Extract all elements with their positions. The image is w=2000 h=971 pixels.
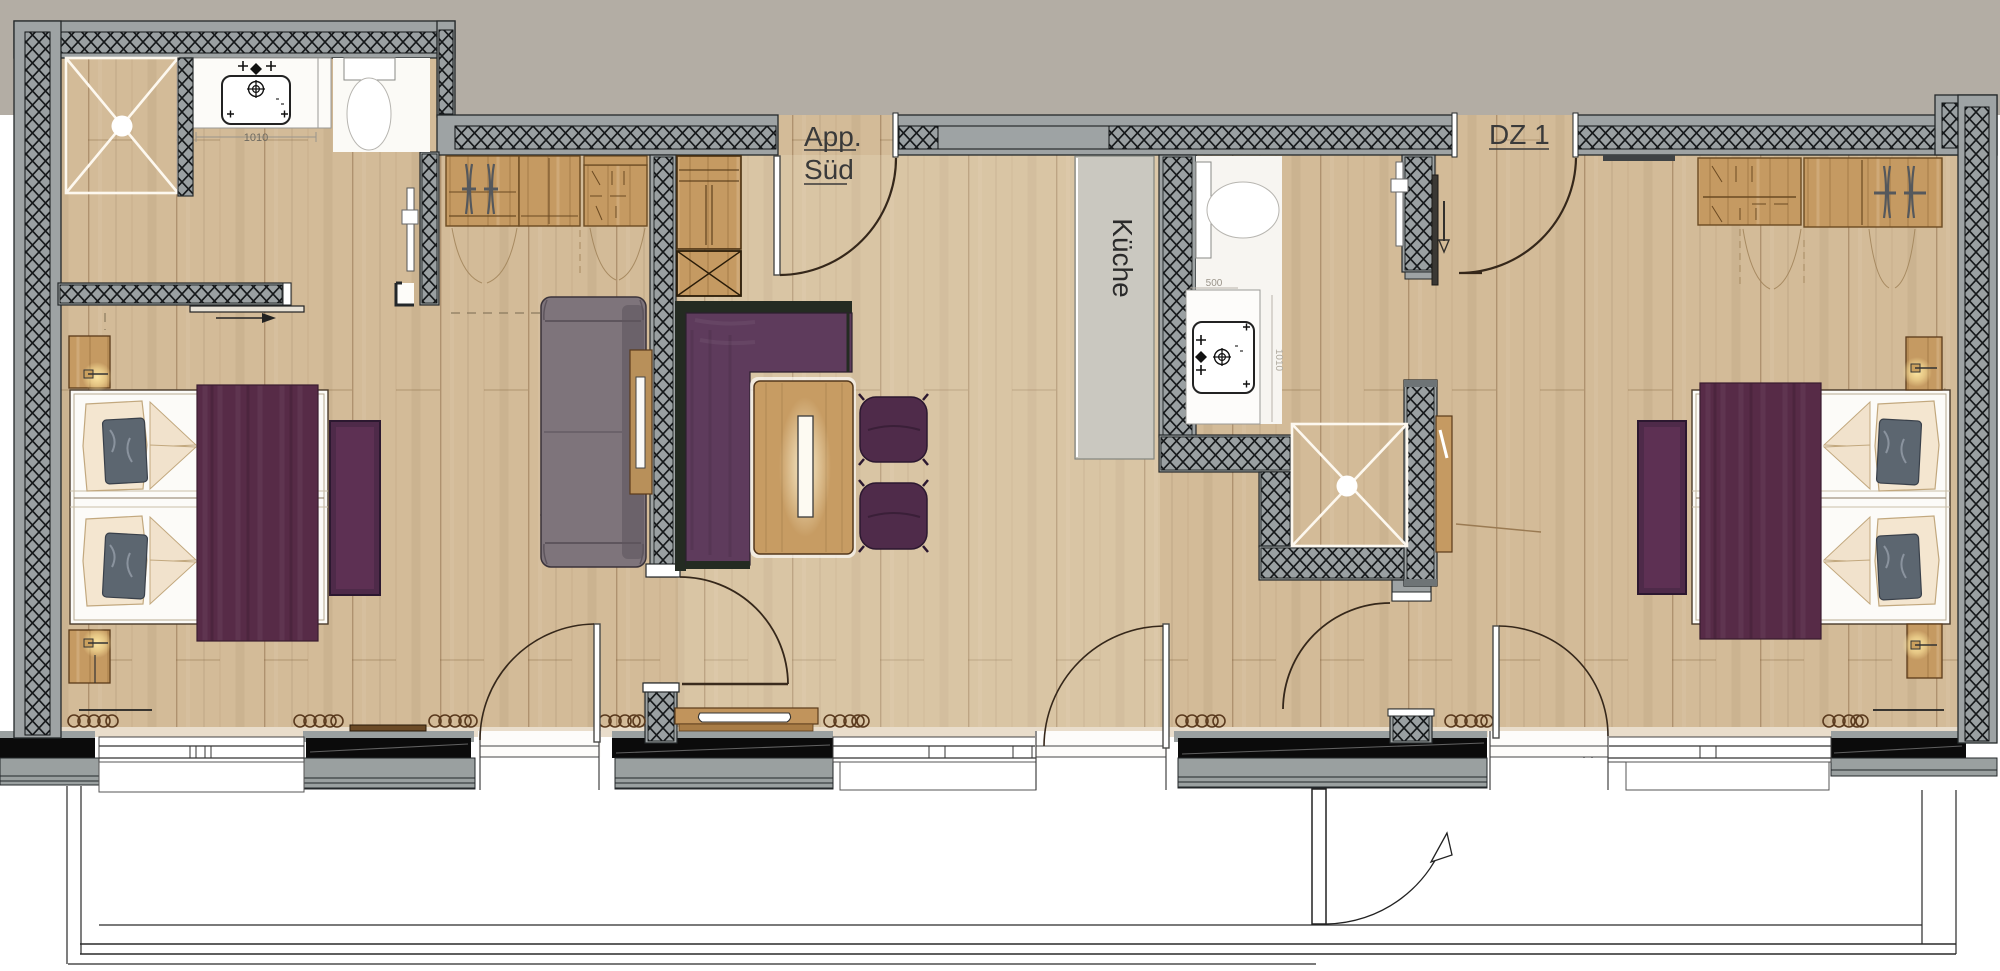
svg-text:DZ 1: DZ 1: [1489, 119, 1550, 150]
svg-text:500: 500: [1206, 278, 1223, 289]
svg-text:1010: 1010: [1273, 349, 1284, 372]
svg-text:Küche: Küche: [1107, 218, 1138, 297]
svg-text:App.: App.: [804, 121, 862, 152]
svg-text:Süd: Süd: [804, 154, 854, 185]
svg-text:1010: 1010: [244, 132, 268, 144]
